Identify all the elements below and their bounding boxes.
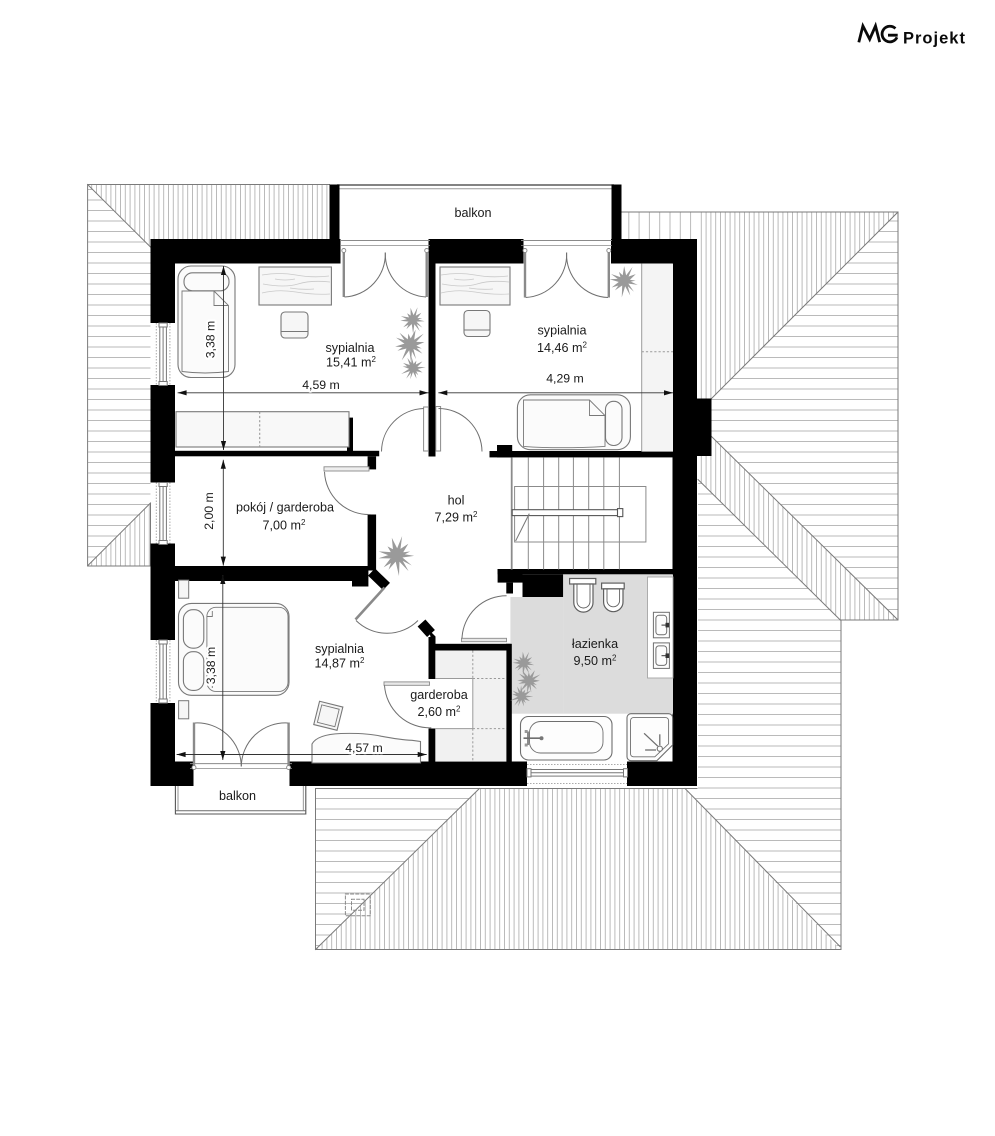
svg-text:14,46 m2: 14,46 m2: [537, 341, 588, 356]
svg-text:3,38 m: 3,38 m: [204, 321, 218, 359]
svg-text:9,50 m2: 9,50 m2: [574, 654, 618, 669]
svg-text:garderoba: garderoba: [410, 688, 467, 702]
svg-text:4,29 m: 4,29 m: [546, 372, 584, 386]
svg-text:3,38 m: 3,38 m: [204, 647, 218, 685]
svg-text:15,41 m2: 15,41 m2: [326, 355, 377, 370]
svg-text:sypialnia: sypialnia: [537, 324, 586, 338]
svg-text:14,87 m2: 14,87 m2: [315, 656, 366, 671]
svg-text:sypialnia: sypialnia: [325, 341, 374, 355]
svg-text:Projekt: Projekt: [903, 30, 966, 48]
svg-text:sypialnia: sypialnia: [315, 642, 364, 656]
svg-text:pokój / garderoba: pokój / garderoba: [236, 501, 334, 515]
svg-text:4,59 m: 4,59 m: [302, 378, 340, 392]
svg-text:7,29 m2: 7,29 m2: [435, 510, 479, 525]
svg-text:2,00 m: 2,00 m: [202, 492, 216, 530]
svg-text:hol: hol: [448, 494, 465, 508]
svg-text:łazienka: łazienka: [572, 637, 618, 651]
svg-text:2,60 m2: 2,60 m2: [418, 705, 462, 720]
svg-text:7,00 m2: 7,00 m2: [263, 518, 307, 533]
svg-text:4,57 m: 4,57 m: [345, 741, 383, 755]
svg-text:balkon: balkon: [454, 206, 491, 220]
svg-text:balkon: balkon: [219, 789, 256, 803]
